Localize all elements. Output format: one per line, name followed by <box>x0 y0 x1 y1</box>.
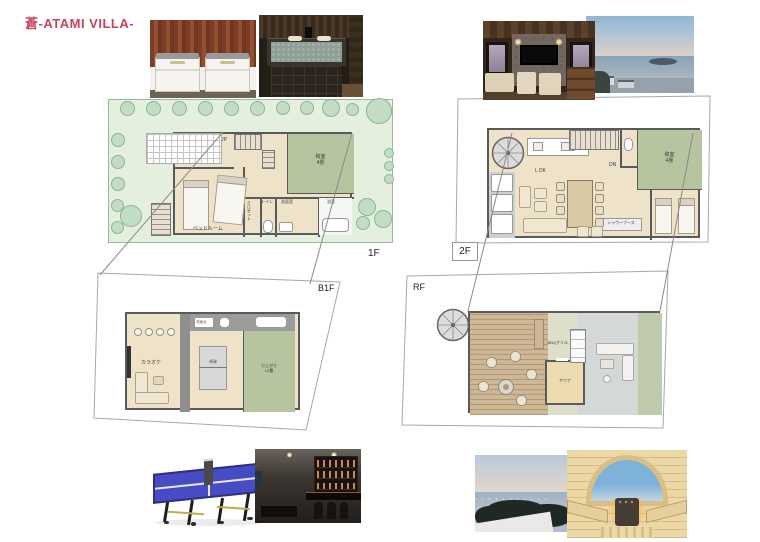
garden-tree <box>276 101 290 115</box>
kitchen-sink <box>533 142 543 151</box>
room-label-bedroom: ベッドルーム <box>193 226 223 232</box>
table-wheel <box>219 521 224 524</box>
armchair <box>534 188 547 199</box>
deck-chair <box>478 381 489 392</box>
room-label-ldk: L DK <box>535 168 546 174</box>
garden-tree <box>120 101 135 116</box>
garden-tree <box>384 148 394 158</box>
floor-plan-rf: サウナ BBQグリル <box>468 311 660 413</box>
wall <box>275 197 277 237</box>
room-label-table-tennis: 卓球 <box>199 360 227 365</box>
ottoman <box>577 226 589 237</box>
bbq-grill <box>570 329 586 363</box>
koagari-size-text: 12畳 <box>243 369 295 374</box>
bar-stool <box>327 502 335 519</box>
garden-tree <box>356 216 370 230</box>
utility-room <box>491 194 513 212</box>
photo-sauna <box>567 450 687 538</box>
living-window <box>486 42 507 75</box>
room-label-sauna: サウナ <box>545 379 585 384</box>
garden-tree <box>111 133 125 147</box>
photo-living-room <box>483 21 595 100</box>
bed-headboard <box>206 53 249 59</box>
floor-label-1f: 1F <box>368 248 380 259</box>
bathtub <box>322 218 349 232</box>
dining-chair <box>556 194 565 203</box>
outdoor-sofa <box>622 355 634 381</box>
room-label-shower: シャワーブース <box>600 221 642 226</box>
toilet-fixture <box>624 138 633 151</box>
garden-tree <box>358 198 376 216</box>
bathtub-front-tiles <box>271 66 342 97</box>
bed-pillow <box>170 61 185 64</box>
room-label-bath: 浴室 <box>327 200 335 205</box>
deck-chair <box>510 351 521 362</box>
garden-tree <box>172 101 187 116</box>
room-label-dn: DN <box>609 162 616 168</box>
bar-shelves <box>314 456 357 493</box>
lounge-chair <box>519 186 531 208</box>
dining-chair <box>556 182 565 191</box>
table-crossbar <box>168 511 204 516</box>
garden-tree <box>224 101 239 116</box>
wall <box>620 130 622 166</box>
bottle-row <box>317 483 355 491</box>
table-net <box>204 459 213 486</box>
dining-table <box>567 180 593 228</box>
bath-faucet <box>305 27 312 38</box>
bottle-row <box>317 471 355 479</box>
bar-stool <box>340 502 348 519</box>
floor-plan-b1f: カラオケ 洗面台 卓球 小上がり 12畳 <box>125 312 300 410</box>
photo-table-tennis <box>145 445 273 533</box>
photo-bar <box>255 449 361 523</box>
bed <box>213 175 248 226</box>
room-label-koagari: 小上がり 12畳 <box>243 364 295 374</box>
floor-label-2f: 2F <box>452 242 478 261</box>
view-house <box>618 80 633 88</box>
entrance-tile-area <box>146 133 222 164</box>
sauna-door <box>556 358 568 361</box>
outdoor-sofa <box>596 343 634 355</box>
room-label-washitsu-1f: 和室 4畳 <box>287 154 354 166</box>
washitsu-size-text: 4畳 <box>637 158 702 164</box>
bed <box>678 198 695 234</box>
stairs-landing <box>262 150 275 169</box>
room-label-closet: クロゼット <box>246 201 251 221</box>
villa-floorplan-page: 蒼-ATAMI VILLA- UP 和室 4畳 <box>0 0 760 542</box>
table-shadow <box>155 519 263 526</box>
bar-coffee-table <box>261 506 297 517</box>
dining-chair <box>556 206 565 215</box>
room-label-washitsu-2f: 和室 4畳 <box>637 152 702 164</box>
dining-chair <box>595 206 604 215</box>
view-sky <box>586 16 694 56</box>
table-tennis-table <box>199 346 227 390</box>
bar-screen <box>255 471 262 487</box>
garden-tree <box>384 161 394 171</box>
washitsu-size-text: 4畳 <box>287 160 354 166</box>
toilet-fixture <box>219 317 230 328</box>
spiral-staircase <box>491 136 525 170</box>
outdoor-table <box>600 359 614 369</box>
bed <box>183 180 209 230</box>
dining-chair <box>595 182 604 191</box>
garden-tree <box>120 205 142 227</box>
garden-tree <box>300 101 314 115</box>
table-wheel <box>164 521 169 524</box>
garden-tree <box>111 177 125 191</box>
sauna-heater <box>615 498 639 526</box>
floor-plan-2f: L DK DN 和室 4畳 シャワーブース <box>487 128 700 238</box>
photo-bedroom <box>150 20 256 98</box>
garden-tree <box>374 210 392 228</box>
bed <box>655 198 672 234</box>
wall <box>175 167 234 169</box>
deck-chair <box>526 369 537 380</box>
table-wheel <box>247 517 252 520</box>
garden-tree <box>250 101 265 116</box>
photo-ocean-view <box>586 16 694 93</box>
bedroom-bed <box>155 57 200 91</box>
room-label-washroom: 洗面室 <box>281 200 293 205</box>
table-tennis-net <box>199 367 227 368</box>
living-armchair <box>517 72 536 94</box>
bath-towel <box>317 36 331 42</box>
karaoke-seat <box>156 328 164 336</box>
bathtub <box>255 316 287 328</box>
corridor <box>180 314 190 412</box>
sink-fixture <box>279 222 293 232</box>
karaoke-seat <box>145 328 153 336</box>
floor-label-b1f: B1F <box>318 283 335 293</box>
bed-fold <box>206 69 249 71</box>
photo-bath <box>259 15 363 97</box>
karaoke-table <box>153 376 164 385</box>
table-wheel <box>191 522 196 525</box>
sofa <box>523 218 567 233</box>
outdoor-steps <box>151 203 171 236</box>
room-label-toilet: トイレ <box>261 200 273 205</box>
garden-tree <box>146 101 161 116</box>
room-label-bbq: BBQグリル <box>534 341 568 346</box>
living-cabinet <box>567 67 595 100</box>
bottle-row <box>317 460 355 468</box>
room-label-karaoke: カラオケ <box>141 360 161 366</box>
spiral-staircase <box>436 308 470 342</box>
garden-tree <box>346 103 359 116</box>
sauna-stones <box>617 499 637 506</box>
room-label-vanity: 洗面台 <box>196 320 207 324</box>
fire-pit <box>503 384 509 390</box>
sauna-floor <box>601 527 654 538</box>
utility-room <box>491 214 513 234</box>
garden-tree <box>384 174 394 184</box>
living-sofa <box>485 73 514 92</box>
garden-tree <box>111 155 125 169</box>
karaoke-seat <box>167 328 175 336</box>
wall <box>650 190 652 240</box>
stairs-up <box>234 134 262 150</box>
karaoke-sofa <box>135 392 169 404</box>
ottoman <box>591 226 603 237</box>
bathtub-water <box>271 42 342 62</box>
wall <box>620 166 637 168</box>
utility-room <box>491 174 513 192</box>
bath-towel <box>288 36 302 42</box>
deck-chair <box>486 357 497 368</box>
karaoke-seat <box>134 328 142 336</box>
view-island <box>649 58 677 65</box>
green-strip <box>638 313 662 415</box>
page-title: 蒼-ATAMI VILLA- <box>25 13 134 32</box>
armchair <box>534 201 547 212</box>
garden-tree <box>322 99 340 117</box>
bedroom-bed <box>205 57 250 91</box>
bed-fold <box>156 69 199 71</box>
bed-pillow <box>220 61 235 64</box>
living-tv <box>520 45 558 65</box>
deck-chair <box>516 395 527 406</box>
dining-chair <box>595 194 604 203</box>
bar-counter <box>306 492 361 500</box>
toilet-fixture <box>263 220 273 233</box>
outdoor-stool <box>603 375 611 383</box>
stairs-down <box>569 130 619 150</box>
living-armchair <box>539 73 561 95</box>
bed-headboard <box>156 53 199 59</box>
floor-label-rf: RF <box>413 282 425 292</box>
garden-tree <box>198 101 213 116</box>
bar-stool <box>314 502 322 519</box>
karaoke-tv <box>127 346 131 378</box>
garden-tree <box>366 98 392 124</box>
bath-floor <box>342 84 363 97</box>
bar-spotlight <box>287 452 292 458</box>
